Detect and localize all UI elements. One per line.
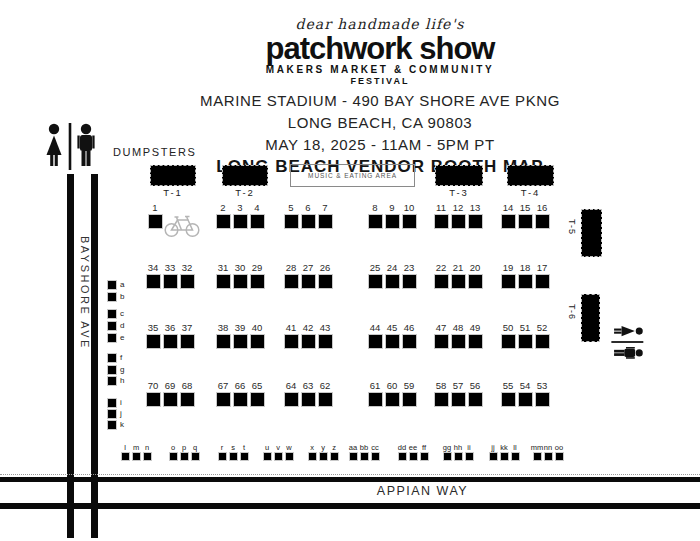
letter-booth-square: [274, 452, 283, 461]
letter-booth-group: ddeeff: [397, 443, 429, 461]
booth-square: [180, 334, 195, 349]
letter-booth: v: [273, 443, 283, 461]
booth: 38: [215, 322, 231, 349]
letter-booth: l: [120, 443, 130, 461]
booth-group: 282726: [283, 262, 333, 289]
booth-number: 41: [286, 322, 297, 334]
letter-booth-label: bb: [360, 443, 368, 452]
letter-booth: y: [318, 443, 328, 461]
booth-number: 60: [387, 380, 398, 392]
booth-number: 65: [252, 380, 263, 392]
letter-booth-label: t: [243, 443, 245, 452]
booth-number: 28: [286, 262, 297, 274]
letter-booth-square: [349, 452, 358, 461]
booth: 57: [450, 380, 466, 407]
letter-booth-label: p: [182, 443, 186, 452]
booth-number: 59: [404, 380, 415, 392]
tent-label: T-5: [567, 219, 577, 235]
side-letter-label: b: [120, 292, 124, 302]
letter-booth: hh: [453, 443, 463, 461]
side-letter-booth: h: [107, 376, 124, 386]
booth: 56: [467, 380, 483, 407]
booth: 31: [215, 262, 231, 289]
booth-number: 40: [252, 322, 263, 334]
booth-number: 55: [503, 380, 514, 392]
booth-square: [368, 214, 383, 229]
booth: 55: [500, 380, 516, 407]
letter-booth-label: aa: [349, 443, 357, 452]
booth-number: 3: [237, 202, 242, 214]
letter-booth-label: u: [265, 443, 269, 452]
booth: 45: [384, 322, 400, 349]
tent-block: [581, 294, 600, 342]
letter-booth: q: [190, 443, 200, 461]
letter-booth: w: [284, 443, 294, 461]
booth-number: 18: [520, 262, 531, 274]
letter-booth-label: y: [321, 443, 325, 452]
booth-square: [468, 334, 483, 349]
booth: 16: [534, 202, 550, 229]
booth-square: [163, 392, 178, 407]
booth: 24: [384, 262, 400, 289]
letter-booth: cc: [370, 443, 380, 461]
booth-square: [434, 214, 449, 229]
booth: 12: [450, 202, 466, 229]
booth-square: [368, 274, 383, 289]
booth: 60: [384, 380, 400, 407]
booth-square: [284, 274, 299, 289]
side-letter-label: j: [120, 409, 122, 419]
booth: 33: [162, 262, 178, 289]
booth-number: 6: [305, 202, 310, 214]
booth-number: 43: [320, 322, 331, 334]
booth-group: 676665: [215, 380, 265, 407]
letter-booth: bb: [359, 443, 369, 461]
booth: 28: [283, 262, 299, 289]
letter-booth-label: cc: [371, 443, 379, 452]
vendor-booth-map-page: dear handmade life's patchwork show MAKE…: [0, 0, 700, 541]
booth-square: [318, 214, 333, 229]
booth: 30: [232, 262, 248, 289]
restroom-icon-rotated: [605, 325, 649, 363]
booth-square: [301, 214, 316, 229]
booth-square: [233, 334, 248, 349]
booth-number: 57: [453, 380, 464, 392]
letter-booth-square: [454, 452, 463, 461]
letter-booth-square: [398, 452, 407, 461]
letter-booth-square: [360, 452, 369, 461]
side-letter-booth: a: [107, 280, 124, 290]
booth-number: 62: [320, 380, 331, 392]
booth-number: 33: [165, 262, 176, 274]
booth-square: [468, 214, 483, 229]
letter-booth-label: x: [310, 443, 314, 452]
side-letter-booth: e: [107, 333, 124, 343]
letter-booth: x: [307, 443, 317, 461]
booth-square: [402, 274, 417, 289]
letter-booth-square: [308, 452, 317, 461]
booth-square: [434, 334, 449, 349]
letter-booth-label: nn: [544, 443, 552, 452]
booth-number: 24: [387, 262, 398, 274]
booth: 13: [467, 202, 483, 229]
letter-booth: p: [179, 443, 189, 461]
booth-number: 44: [370, 322, 381, 334]
music-eating-area-label: MUSIC & EATING AREA: [308, 172, 397, 179]
booth-number: 67: [218, 380, 229, 392]
letter-booth-group: uvw: [262, 443, 294, 461]
booth: 8: [367, 202, 383, 229]
booth-number: 51: [520, 322, 531, 334]
side-letter-label: k: [120, 420, 124, 430]
side-letter-label: g: [120, 365, 124, 375]
booth: 27: [300, 262, 316, 289]
letter-booth-label: m: [133, 443, 139, 452]
booth: 52: [534, 322, 550, 349]
letter-booth: o: [168, 443, 178, 461]
booth-square: [501, 392, 516, 407]
booth-square: [148, 214, 163, 229]
booth-number: 20: [470, 262, 481, 274]
booth-number: 2: [220, 202, 225, 214]
booth-group: 414243: [283, 322, 333, 349]
letter-booth-square: [191, 452, 200, 461]
letter-booth: nn: [543, 443, 553, 461]
booth-number: 47: [436, 322, 447, 334]
booth: 25: [367, 262, 383, 289]
booth-square: [385, 214, 400, 229]
booth-square: [368, 334, 383, 349]
booth-group: 383940: [215, 322, 265, 349]
booth-square: [180, 392, 195, 407]
booth-square: [518, 274, 533, 289]
side-letter-booth: f: [107, 353, 122, 363]
booth-square: [402, 392, 417, 407]
booth-group: 585756: [433, 380, 483, 407]
booth-number: 22: [436, 262, 447, 274]
letter-booth-square: [465, 452, 474, 461]
letter-booth-label: jj: [491, 443, 494, 452]
side-letter-square: [107, 333, 117, 343]
booth: 37: [179, 322, 195, 349]
brand-logo: patchwork show: [30, 33, 700, 65]
booth-square: [301, 274, 316, 289]
booth-number: 34: [148, 262, 159, 274]
booth: 15: [517, 202, 533, 229]
side-letter-square: [107, 292, 117, 302]
letter-booth-label: hh: [454, 443, 462, 452]
booth: 46: [401, 322, 417, 349]
booth-square: [146, 274, 161, 289]
booth-square: [216, 334, 231, 349]
letter-booth-label: o: [171, 443, 175, 452]
booth-number: 69: [165, 380, 176, 392]
booth-group: 234: [215, 202, 265, 229]
letter-booth-label: mm: [531, 443, 544, 452]
dumpsters-label: DUMPSTERS: [113, 146, 196, 158]
booth-group: 474849: [433, 322, 483, 349]
booth-number: 19: [503, 262, 514, 274]
restroom-icon: [38, 122, 102, 176]
letter-booth-square: [533, 452, 542, 461]
tent-label: T-6: [567, 304, 577, 320]
booth-number: 14: [503, 202, 514, 214]
side-letter-square: [107, 365, 117, 375]
booth: 61: [367, 380, 383, 407]
letter-booth-square: [443, 452, 452, 461]
booth: 43: [317, 322, 333, 349]
booth: 23: [401, 262, 417, 289]
booth: 26: [317, 262, 333, 289]
booth-group: 505152: [500, 322, 550, 349]
booth-group: 706968: [145, 380, 195, 407]
letter-booth-square: [371, 452, 380, 461]
side-letter-square: [107, 309, 117, 319]
booth-number: 30: [235, 262, 246, 274]
booth: 65: [249, 380, 265, 407]
side-letter-square: [107, 409, 117, 419]
booth: 2: [215, 202, 231, 229]
letter-booth-label: n: [145, 443, 149, 452]
booth-number: 66: [235, 380, 246, 392]
letter-booth-square: [121, 452, 130, 461]
booth-group: 8910: [367, 202, 417, 229]
booth: 66: [232, 380, 248, 407]
letter-booth: n: [142, 443, 152, 461]
booth-square: [301, 334, 316, 349]
letter-booth: r: [217, 443, 227, 461]
booth-square: [233, 274, 248, 289]
booth-number: 17: [537, 262, 548, 274]
booth-number: 31: [218, 262, 229, 274]
bayshore-road-left-line: [67, 174, 74, 538]
booth-group: 1: [147, 202, 163, 229]
booth: 19: [500, 262, 516, 289]
brand-tagline: MAKERS MARKET & COMMUNITY: [30, 64, 700, 75]
booth-number: 27: [303, 262, 314, 274]
letter-booth: s: [228, 443, 238, 461]
side-letter-square: [107, 376, 117, 386]
letter-booth-square: [319, 452, 328, 461]
letter-booth-label: ll: [513, 443, 516, 452]
booth: 68: [179, 380, 195, 407]
booth-group: 444546: [367, 322, 417, 349]
city-line: LONG BEACH, CA 90803: [30, 114, 700, 131]
booth-group: 141516: [500, 202, 550, 229]
letter-booth-label: q: [193, 443, 197, 452]
letter-booth-label: l: [124, 443, 126, 452]
letter-booth-square: [544, 452, 553, 461]
booth-number: 61: [370, 380, 381, 392]
booth-number: 39: [235, 322, 246, 334]
booth: 40: [249, 322, 265, 349]
letter-booth-square: [132, 452, 141, 461]
booth-group: 555453: [500, 380, 550, 407]
booth: 49: [467, 322, 483, 349]
letter-booth-square: [511, 452, 520, 461]
tent-label: T-4: [497, 187, 564, 198]
booth-square: [535, 274, 550, 289]
booth-number: 7: [322, 202, 327, 214]
letter-booth-label: dd: [398, 443, 406, 452]
booth-group: 252423: [367, 262, 417, 289]
booth-number: 35: [148, 322, 159, 334]
side-letter-label: i: [120, 398, 122, 408]
letter-booth-square: [420, 452, 429, 461]
booth-group: 313029: [215, 262, 265, 289]
letter-booth-label: ff: [422, 443, 426, 452]
letter-booth: dd: [397, 443, 407, 461]
letter-booth-square: [285, 452, 294, 461]
booth: 44: [367, 322, 383, 349]
booth-square: [518, 334, 533, 349]
booth: 53: [534, 380, 550, 407]
booth-number: 13: [470, 202, 481, 214]
letter-booth-label: v: [276, 443, 280, 452]
booth-square: [402, 214, 417, 229]
booth: 9: [384, 202, 400, 229]
side-letter-square: [107, 280, 117, 290]
parking-boundary-dotted-line: [0, 474, 700, 475]
booth: 3: [232, 202, 248, 229]
letter-booth-label: ii: [467, 443, 470, 452]
booth-number: 11: [436, 202, 446, 214]
booth-number: 12: [453, 202, 464, 214]
side-letter-square: [107, 353, 117, 363]
letter-booth: ii: [464, 443, 474, 461]
booth: 29: [249, 262, 265, 289]
booth-number: 42: [303, 322, 314, 334]
booth-square: [301, 392, 316, 407]
letter-booth-group: aabbcc: [348, 443, 380, 461]
booth: 4: [249, 202, 265, 229]
letter-booth: ff: [419, 443, 429, 461]
booth: 32: [179, 262, 195, 289]
booth-number: 16: [537, 202, 548, 214]
booth-square: [402, 334, 417, 349]
booth-square: [163, 274, 178, 289]
side-letter-booth: d: [107, 321, 124, 331]
tent-block: [150, 165, 196, 186]
booth-square: [501, 334, 516, 349]
booth-group: 567: [283, 202, 333, 229]
tent-block: [222, 165, 268, 186]
letter-booth-label: r: [221, 443, 224, 452]
letter-booth-square: [500, 452, 509, 461]
booth: 64: [283, 380, 299, 407]
booth-number: 9: [389, 202, 394, 214]
booth-square: [535, 214, 550, 229]
booth-square: [318, 274, 333, 289]
booth-number: 68: [182, 380, 193, 392]
booth: 59: [401, 380, 417, 407]
letter-booth: z: [329, 443, 339, 461]
booth-number: 29: [252, 262, 263, 274]
letter-booth-group: mmnnoo: [532, 443, 564, 461]
booth: 63: [300, 380, 316, 407]
letter-booth-label: w: [286, 443, 291, 452]
booth-number: 50: [503, 322, 514, 334]
booth: 39: [232, 322, 248, 349]
letter-booth-group: xyz: [307, 443, 339, 461]
side-letter-square: [107, 321, 117, 331]
side-letter-label: h: [120, 376, 124, 386]
side-letter-square: [107, 420, 117, 430]
booth-square: [451, 334, 466, 349]
booth-number: 58: [436, 380, 447, 392]
tent-block: [507, 165, 554, 186]
booth: 1: [147, 202, 163, 229]
booth-square: [501, 214, 516, 229]
booth-number: 25: [370, 262, 381, 274]
letter-booth-group: opq: [168, 443, 200, 461]
booth-number: 46: [404, 322, 415, 334]
street-label-appian: APPIAN WAY: [330, 484, 515, 498]
booth-square: [216, 274, 231, 289]
booth-square: [518, 392, 533, 407]
letter-booth: t: [239, 443, 249, 461]
letter-booth: m: [131, 443, 141, 461]
letter-booth: oo: [554, 443, 564, 461]
booth: 11: [433, 202, 449, 229]
booth-group: 646362: [283, 380, 333, 407]
letter-booth-label: ee: [409, 443, 417, 452]
letter-booth-group: gghhii: [442, 443, 474, 461]
appian-road-top-line: [0, 477, 700, 482]
letter-booth-label: oo: [555, 443, 563, 452]
booth-number: 1: [152, 202, 157, 214]
booth-number: 64: [286, 380, 297, 392]
booth-square: [250, 392, 265, 407]
side-letter-booth: j: [107, 409, 122, 419]
side-letter-label: c: [120, 309, 124, 319]
booth: 5: [283, 202, 299, 229]
side-letter-booth: i: [107, 398, 122, 408]
booth-number: 23: [404, 262, 415, 274]
letter-booth: mm: [532, 443, 542, 461]
booth: 36: [162, 322, 178, 349]
booth-number: 10: [404, 202, 415, 214]
booth-number: 54: [520, 380, 531, 392]
letter-booth: gg: [442, 443, 452, 461]
bayshore-road-right-line: [91, 174, 98, 538]
booth-number: 56: [470, 380, 481, 392]
booth: 17: [534, 262, 550, 289]
booth-square: [233, 214, 248, 229]
booth-square: [318, 392, 333, 407]
booth: 18: [517, 262, 533, 289]
street-label-bayshore: BAYSHORE AVE: [74, 233, 91, 353]
side-letter-square: [107, 398, 117, 408]
booth: 21: [450, 262, 466, 289]
booth-square: [250, 334, 265, 349]
letter-booth: ee: [408, 443, 418, 461]
letter-booth-square: [263, 452, 272, 461]
booth-square: [535, 334, 550, 349]
booth-square: [385, 274, 400, 289]
booth-square: [434, 274, 449, 289]
booth-square: [451, 274, 466, 289]
letter-booth-label: s: [231, 443, 235, 452]
booth-square: [146, 392, 161, 407]
booth-square: [250, 214, 265, 229]
booth-number: 4: [254, 202, 259, 214]
booth-square: [284, 334, 299, 349]
booth-square: [250, 274, 265, 289]
booth: 48: [450, 322, 466, 349]
appian-road-bottom-line: [0, 503, 700, 509]
letter-booth-group: lmn: [120, 443, 152, 461]
